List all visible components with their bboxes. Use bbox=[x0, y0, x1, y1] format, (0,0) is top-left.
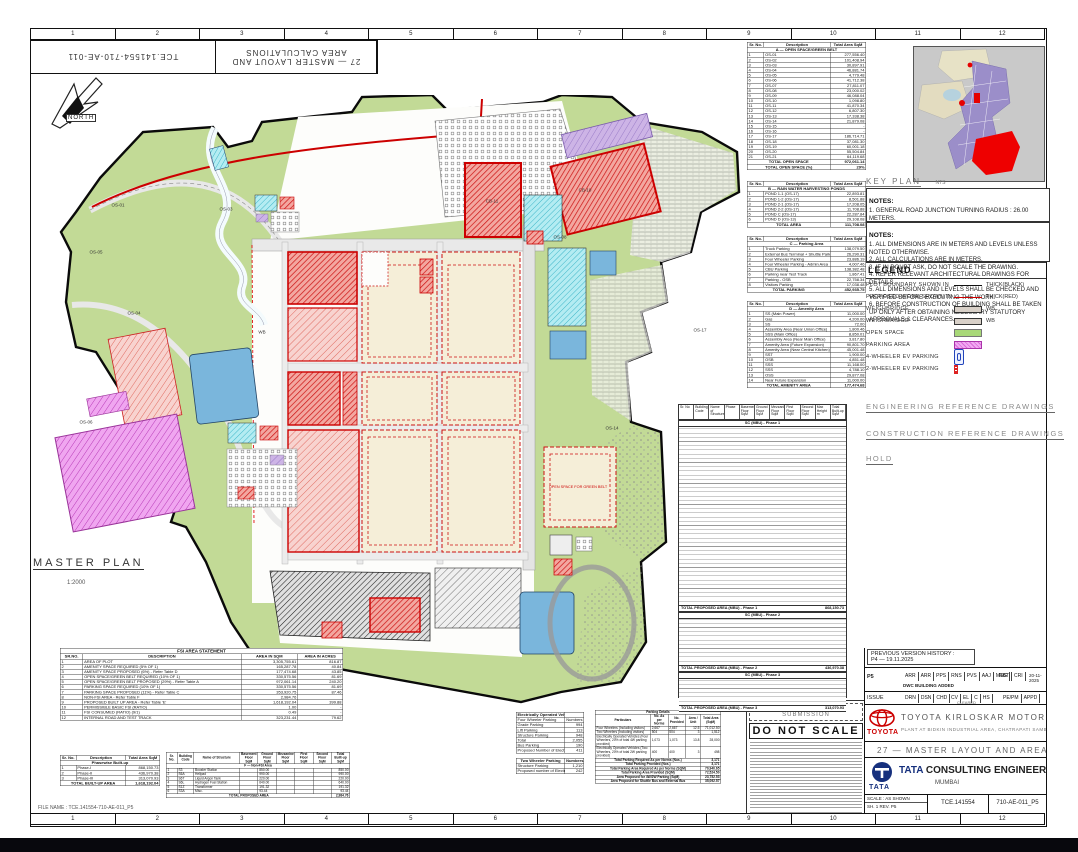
master-plan-title: MASTER PLAN bbox=[33, 557, 144, 570]
legend-item: PROPOSED WORK SHOWN INTHICK(RED) bbox=[866, 291, 1046, 303]
ruler-cell: 6 bbox=[454, 814, 539, 824]
toyota-logo-icon bbox=[869, 709, 895, 727]
construction-refs-heading: CONSTRUCTION REFERENCE DRAWINGS bbox=[866, 423, 1064, 441]
tableE-rows bbox=[679, 679, 846, 705]
rev-cell: CRI bbox=[1012, 672, 1026, 681]
table-row: 7Amenity Area (Future Expansion)90,801.7… bbox=[747, 342, 866, 347]
legend-label: 4-WHEELER EV PARKING bbox=[866, 354, 954, 360]
rev-cell: APPD bbox=[1022, 694, 1041, 703]
ruler-cell: 10 bbox=[792, 29, 877, 39]
table-row: Electrically Operated Vehicles (Two Whee… bbox=[595, 746, 721, 758]
phasewise-builtup-table: Sr. No.DescriptionTotal Area SqMPhasewis… bbox=[60, 755, 160, 803]
legend-label: OPEN SPACE bbox=[866, 330, 954, 336]
tableE-rows bbox=[679, 427, 846, 605]
legend-note: THICK(RED) bbox=[986, 294, 1018, 300]
legend-label: PLOT BOUNDARY SHOWN IN bbox=[866, 282, 954, 288]
tableE-head: Ground Floor SqM bbox=[755, 405, 770, 419]
table-open-space: Sr. No.DescriptionTotal Area SqMA — OPEN… bbox=[747, 42, 866, 178]
rev-cell: PVS bbox=[965, 672, 980, 681]
tableE-total: TOTAL PROPOSED AREA (MBU) - Phase 1868,1… bbox=[679, 605, 846, 612]
title-block: PREVIOUS VERSION HISTORY : P4 — 19.11.20… bbox=[864, 648, 1046, 815]
tableE-head: Phase bbox=[725, 405, 740, 419]
do-not-scale-stamp: DO NOT SCALE bbox=[749, 723, 863, 739]
rev-cell: PE/PM bbox=[1001, 694, 1022, 703]
legend-label: PARKING AREA bbox=[866, 342, 954, 348]
building-bottom-red bbox=[370, 598, 420, 632]
company-row: TOYOTA TOYOTA KIRLOSKAR MOTOR PRIVATE LI… bbox=[865, 705, 1046, 742]
legend-note: THICK(BLACK) bbox=[986, 282, 1024, 288]
table-row: TOTAL PROPOSED AREA2,984.76 bbox=[166, 794, 350, 798]
ruler-cell: 4 bbox=[285, 814, 370, 824]
consultant-name: CONSULTING ENGINEERS LIMITED bbox=[926, 765, 1046, 776]
master-plan-caption: MASTER PLAN 1:2000 bbox=[33, 553, 203, 589]
revision-code: P5 bbox=[867, 674, 874, 680]
tableE-head: First Floor SqM bbox=[785, 405, 800, 419]
master-plan-scale: 1:2000 bbox=[67, 580, 85, 586]
table-row: 8Amenity Area (Near Central Kitchen)45,0… bbox=[747, 347, 866, 352]
toyota-wordmark: TOYOTA bbox=[867, 729, 899, 736]
data-table: Sr. No.DescriptionTotal Area SqMD — Amen… bbox=[747, 301, 866, 388]
legend-label: PROPOSED WORK SHOWN IN bbox=[866, 294, 954, 300]
fsi-area-statement: FSI AREA STATEMENTSR.NO.DESCRIPTIONAREA … bbox=[60, 648, 343, 740]
data-table: Sr. No.DescriptionTotal Area SqMC — Park… bbox=[747, 236, 866, 293]
previous-version-history: PREVIOUS VERSION HISTORY : P4 — 19.11.20… bbox=[865, 648, 1046, 668]
ruler-cell: 8 bbox=[623, 814, 708, 824]
hold-heading: HOLD bbox=[866, 448, 893, 466]
company-name: TOYOTA KIRLOSKAR MOTOR PRIVATE LIMITED bbox=[901, 713, 1046, 722]
legend-item: OPEN SPACE bbox=[866, 327, 1046, 339]
table-row: TOTAL OPEN SPACE (%)29% bbox=[747, 165, 866, 170]
tableE-head: Mezzanine Floor SqM bbox=[770, 405, 785, 419]
rev-cell: RBT bbox=[997, 672, 1012, 681]
tableE-total: TOTAL PROPOSED AREA (MBU) - Phase 2436,9… bbox=[679, 665, 846, 672]
data-table: Sr. No.Building CodeName of StructureBas… bbox=[166, 752, 350, 798]
parking-details-table: Parking DetailsParticularsNo. As per Nor… bbox=[595, 710, 721, 804]
tableE-rows bbox=[679, 619, 846, 665]
ruler-cell: 8 bbox=[623, 29, 708, 39]
building-row1-left bbox=[288, 252, 357, 304]
ruler-cell: 12 bbox=[961, 814, 1045, 824]
wb-swatch-icon bbox=[954, 306, 982, 313]
rev-cell: RNS bbox=[949, 672, 965, 681]
ruler-cell: 1 bbox=[31, 814, 116, 824]
taskbar-strip bbox=[0, 838, 1078, 852]
data-table: Electrically Operated VehiclesFour Wheel… bbox=[516, 712, 584, 753]
issue-row: ISSUE DRNDSNCHD CVELCHS CLEARED PE/PMAPP… bbox=[865, 692, 1046, 705]
engineering-refs-heading: ENGINEERING REFERENCE DRAWINGS bbox=[866, 396, 1055, 414]
drawing-number: 710-AE-011_P5 bbox=[989, 795, 1046, 806]
file-name-note: FILE NAME : TCE.141554-710-AE-011_P5 bbox=[38, 805, 133, 811]
key-plan-caption: KEY PLAN NTS bbox=[866, 171, 966, 189]
legend-item: WEIGHBRIDGEWB bbox=[866, 303, 1046, 315]
tableE-head: Building Code bbox=[694, 405, 709, 419]
folded-title-strip: 27 — MASTER LAYOUT AND AREA CALCULATIONS… bbox=[30, 40, 378, 74]
table-row: 2External Bus Terminal + Shuttle Parking… bbox=[747, 252, 866, 257]
ruler-cell: 7 bbox=[538, 814, 623, 824]
note-item: 1. GENERAL ROAD JUNCTION TURNING RADIUS … bbox=[869, 208, 1047, 223]
table-row: TOTAL BUILT-UP AREA1,618,192.04 bbox=[60, 781, 160, 786]
ev4-swatch-icon bbox=[954, 349, 964, 365]
legend-item: 4-WHEELER EV PARKING bbox=[866, 351, 1046, 363]
tableE-head: Name of Structure bbox=[709, 405, 724, 419]
ruler-cell: 1 bbox=[31, 29, 116, 39]
legend-item: PLOT BOUNDARY SHOWN INTHICK(BLACK) bbox=[866, 279, 1046, 291]
table-row: Proposed number of Electrically Operated… bbox=[516, 768, 584, 773]
master-plan-drawing bbox=[30, 95, 745, 707]
data-table: Sr. No.DescriptionTotal Area SqMA — OPEN… bbox=[747, 42, 866, 170]
ruler-top: 123456789101112 bbox=[30, 28, 1045, 40]
engineering-drawing-sheet: { "sheet": { "ruler_numbers": ["1","2","… bbox=[0, 0, 1078, 852]
ruler-cell: 5 bbox=[369, 29, 454, 39]
tableE-total: TOTAL PROPOSED AREA (MBU) - Phase 3313,0… bbox=[679, 705, 846, 712]
building-row3-left bbox=[288, 430, 359, 552]
table-builtup-buildingwise: Sr. NoBuilding CodeName of StructurePhas… bbox=[678, 404, 847, 698]
ruler-cell: 3 bbox=[200, 29, 285, 39]
tata-wordmark: TATA bbox=[869, 784, 890, 791]
legend: LEGEND PLOT BOUNDARY SHOWN INTHICK(BLACK… bbox=[866, 262, 1046, 391]
table-row: Proposed Number of Electrically Operated… bbox=[516, 748, 584, 753]
ev-four-wheeler-table: Electrically Operated VehiclesFour Wheel… bbox=[516, 712, 584, 756]
notes-block-2: NOTES: 1. ALL DIMENSIONS ARE IN METERS A… bbox=[866, 222, 1050, 262]
pond-bottom bbox=[520, 592, 574, 654]
magenta-swatch-icon bbox=[954, 341, 982, 349]
green-swatch-icon bbox=[954, 329, 982, 337]
ruler-cell: 2 bbox=[116, 29, 201, 39]
ruler-cell: 4 bbox=[285, 29, 370, 39]
tata-logo-icon bbox=[871, 761, 893, 783]
drawing-title: 27 — MASTER LAYOUT AND AREA CALCULATIONS bbox=[877, 746, 1046, 755]
table-row: Four Wheeler ParkingNumbers bbox=[516, 717, 584, 722]
line-black-swatch-icon bbox=[954, 285, 982, 286]
plot-open-space-green-belt bbox=[544, 447, 616, 527]
rev-cell: ARR bbox=[903, 672, 919, 681]
rev-cell: PPS bbox=[934, 672, 949, 681]
rev-cell: ARR bbox=[919, 672, 935, 681]
ruler-cell: 10 bbox=[792, 814, 877, 824]
ruler-cell: 12 bbox=[961, 29, 1045, 39]
wb-swatch-icon bbox=[954, 318, 982, 325]
key-plan-map bbox=[913, 46, 1045, 182]
ev-two-wheeler-table: Two Wheeler ParkingNumbersStructure Park… bbox=[516, 758, 584, 782]
ruler-bottom: 123456789101112 bbox=[30, 813, 1045, 825]
flip-drawing-title: 27 — MASTER LAYOUT AND AREA CALCULATIONS bbox=[216, 41, 377, 73]
notes-block-1: NOTES: 1. GENERAL ROAD JUNCTION TURNING … bbox=[866, 188, 1050, 222]
rev-cell: CHD bbox=[934, 694, 950, 703]
ruler-cell: 6 bbox=[454, 29, 539, 39]
ruler-cell: 3 bbox=[200, 814, 285, 824]
rev-cell: AAJ bbox=[980, 672, 994, 681]
table-amenity: Sr. No.DescriptionTotal Area SqMD — Amen… bbox=[747, 301, 866, 403]
legend-label: WEIGHBRIDGE bbox=[866, 318, 954, 324]
pond-left bbox=[189, 347, 259, 424]
consultant-row: TATA TATA CONSULTING ENGINEERS LIMITED M… bbox=[865, 758, 1046, 795]
ruler-cell: 11 bbox=[876, 29, 961, 39]
revision-note: DWC BUILDING ADDED bbox=[903, 683, 954, 688]
building-cb11 bbox=[465, 163, 521, 237]
non-fsi-table: Sr. No.Building CodeName of StructureBas… bbox=[166, 752, 350, 804]
legend-label: WEIGHBRIDGE bbox=[866, 306, 954, 312]
flip-title-line1: 27 — MASTER LAYOUT AND bbox=[232, 57, 361, 66]
table-row: TOTAL PARKING452,935.75 bbox=[747, 287, 866, 292]
data-table: FSI AREA STATEMENTSR.NO.DESCRIPTIONAREA … bbox=[60, 648, 343, 720]
table-ponds: Sr. No.DescriptionTotal Area SqMB — RAIN… bbox=[747, 181, 866, 233]
ruler-cell: 9 bbox=[707, 814, 792, 824]
company-subtitle: PLANT AT BIDKIN INDUSTRIAL AREA, CHATRAP… bbox=[901, 727, 1046, 732]
legend-item: WEIGHBRIDGEWB bbox=[866, 315, 1046, 327]
data-table: Parking DetailsParticularsNo. As per Nor… bbox=[595, 710, 721, 784]
table-row: Area Proposed for Shuttle Bus and Extern… bbox=[595, 779, 721, 783]
ruler-cell: 11 bbox=[876, 814, 961, 824]
scale-row: SCALE : AS SHOWN SH. 1 REV. P5 TCE.14155… bbox=[865, 795, 1046, 814]
tableE-section: SC (MBU) - Phase 1 bbox=[679, 420, 846, 427]
flip-title-line2: AREA CALCULATIONS bbox=[245, 48, 346, 57]
tableE-head: Second Floor SqM bbox=[801, 405, 816, 419]
ruler-cell: 7 bbox=[538, 29, 623, 39]
legend-note: WB bbox=[986, 306, 995, 312]
line-red-swatch-icon bbox=[954, 297, 982, 298]
ruler-cell: 5 bbox=[369, 814, 454, 824]
tableE-head: Sr. No bbox=[679, 405, 694, 419]
legend-label: 2-WHEELER EV PARKING bbox=[866, 366, 954, 372]
job-number: TCE.141554 bbox=[928, 795, 988, 806]
table-row: 12INTERNAL ROAD AND TEST TRACK323,231.44… bbox=[60, 715, 343, 720]
data-table: Sr. No.DescriptionTotal Area SqMPhasewis… bbox=[60, 755, 160, 786]
tableE-head: Max Height m bbox=[816, 405, 831, 419]
legend-title: LEGEND bbox=[866, 263, 1046, 279]
table-row: TOTAL AREA111,708.08 bbox=[747, 222, 866, 227]
data-table: Two Wheeler ParkingNumbersStructure Park… bbox=[516, 758, 584, 774]
ev2-swatch-icon bbox=[954, 365, 958, 374]
rev-cell: DRN bbox=[903, 694, 919, 703]
disclaimer-text bbox=[750, 741, 862, 749]
flip-drawing-number: TCE.141554-710-AE-011 bbox=[31, 41, 216, 73]
tableE-section: SC (MBU) - Phase 2 bbox=[679, 612, 846, 619]
revision-row: P5 ARRARRPPSRNSPVSAAJMSG RBTCRI 20-11-20… bbox=[865, 668, 1046, 692]
tableE-head: Total Built-up SqM bbox=[831, 405, 846, 419]
ruler-cell: 9 bbox=[707, 29, 792, 39]
drawing-title-row: 27 — MASTER LAYOUT AND AREA CALCULATIONS bbox=[865, 742, 1046, 758]
note-item: 1. ALL DIMENSIONS ARE IN METERS AND LEVE… bbox=[869, 242, 1047, 257]
table-row: Electrically Operated Vehicles (Four Whe… bbox=[595, 735, 721, 747]
tableE-head: Basement Floor SqM bbox=[740, 405, 755, 419]
table-parking: Sr. No.DescriptionTotal Area SqMC — Park… bbox=[747, 236, 866, 298]
consultant-city: MUMBAI bbox=[935, 780, 959, 786]
table-row: TOTAL AMENITY AREA177,474.68 bbox=[747, 383, 866, 388]
tableE-section: SC (MBU) - Phase 3 bbox=[679, 672, 846, 679]
legend-note: WB bbox=[986, 318, 995, 324]
data-table: Sr. No.DescriptionTotal Area SqMB — RAIN… bbox=[747, 181, 866, 227]
stamp-block: FOR STATUTORY SUBMISSION DO NOT SCALE FI… bbox=[746, 700, 866, 817]
revision-date: 20-11-2025 bbox=[1029, 673, 1046, 683]
scale-value: SCALE : AS SHOWN bbox=[865, 795, 927, 803]
rev-cell: DSN bbox=[919, 694, 935, 703]
rev-cell: HS bbox=[981, 694, 993, 703]
ruler-cell: 2 bbox=[116, 814, 201, 824]
